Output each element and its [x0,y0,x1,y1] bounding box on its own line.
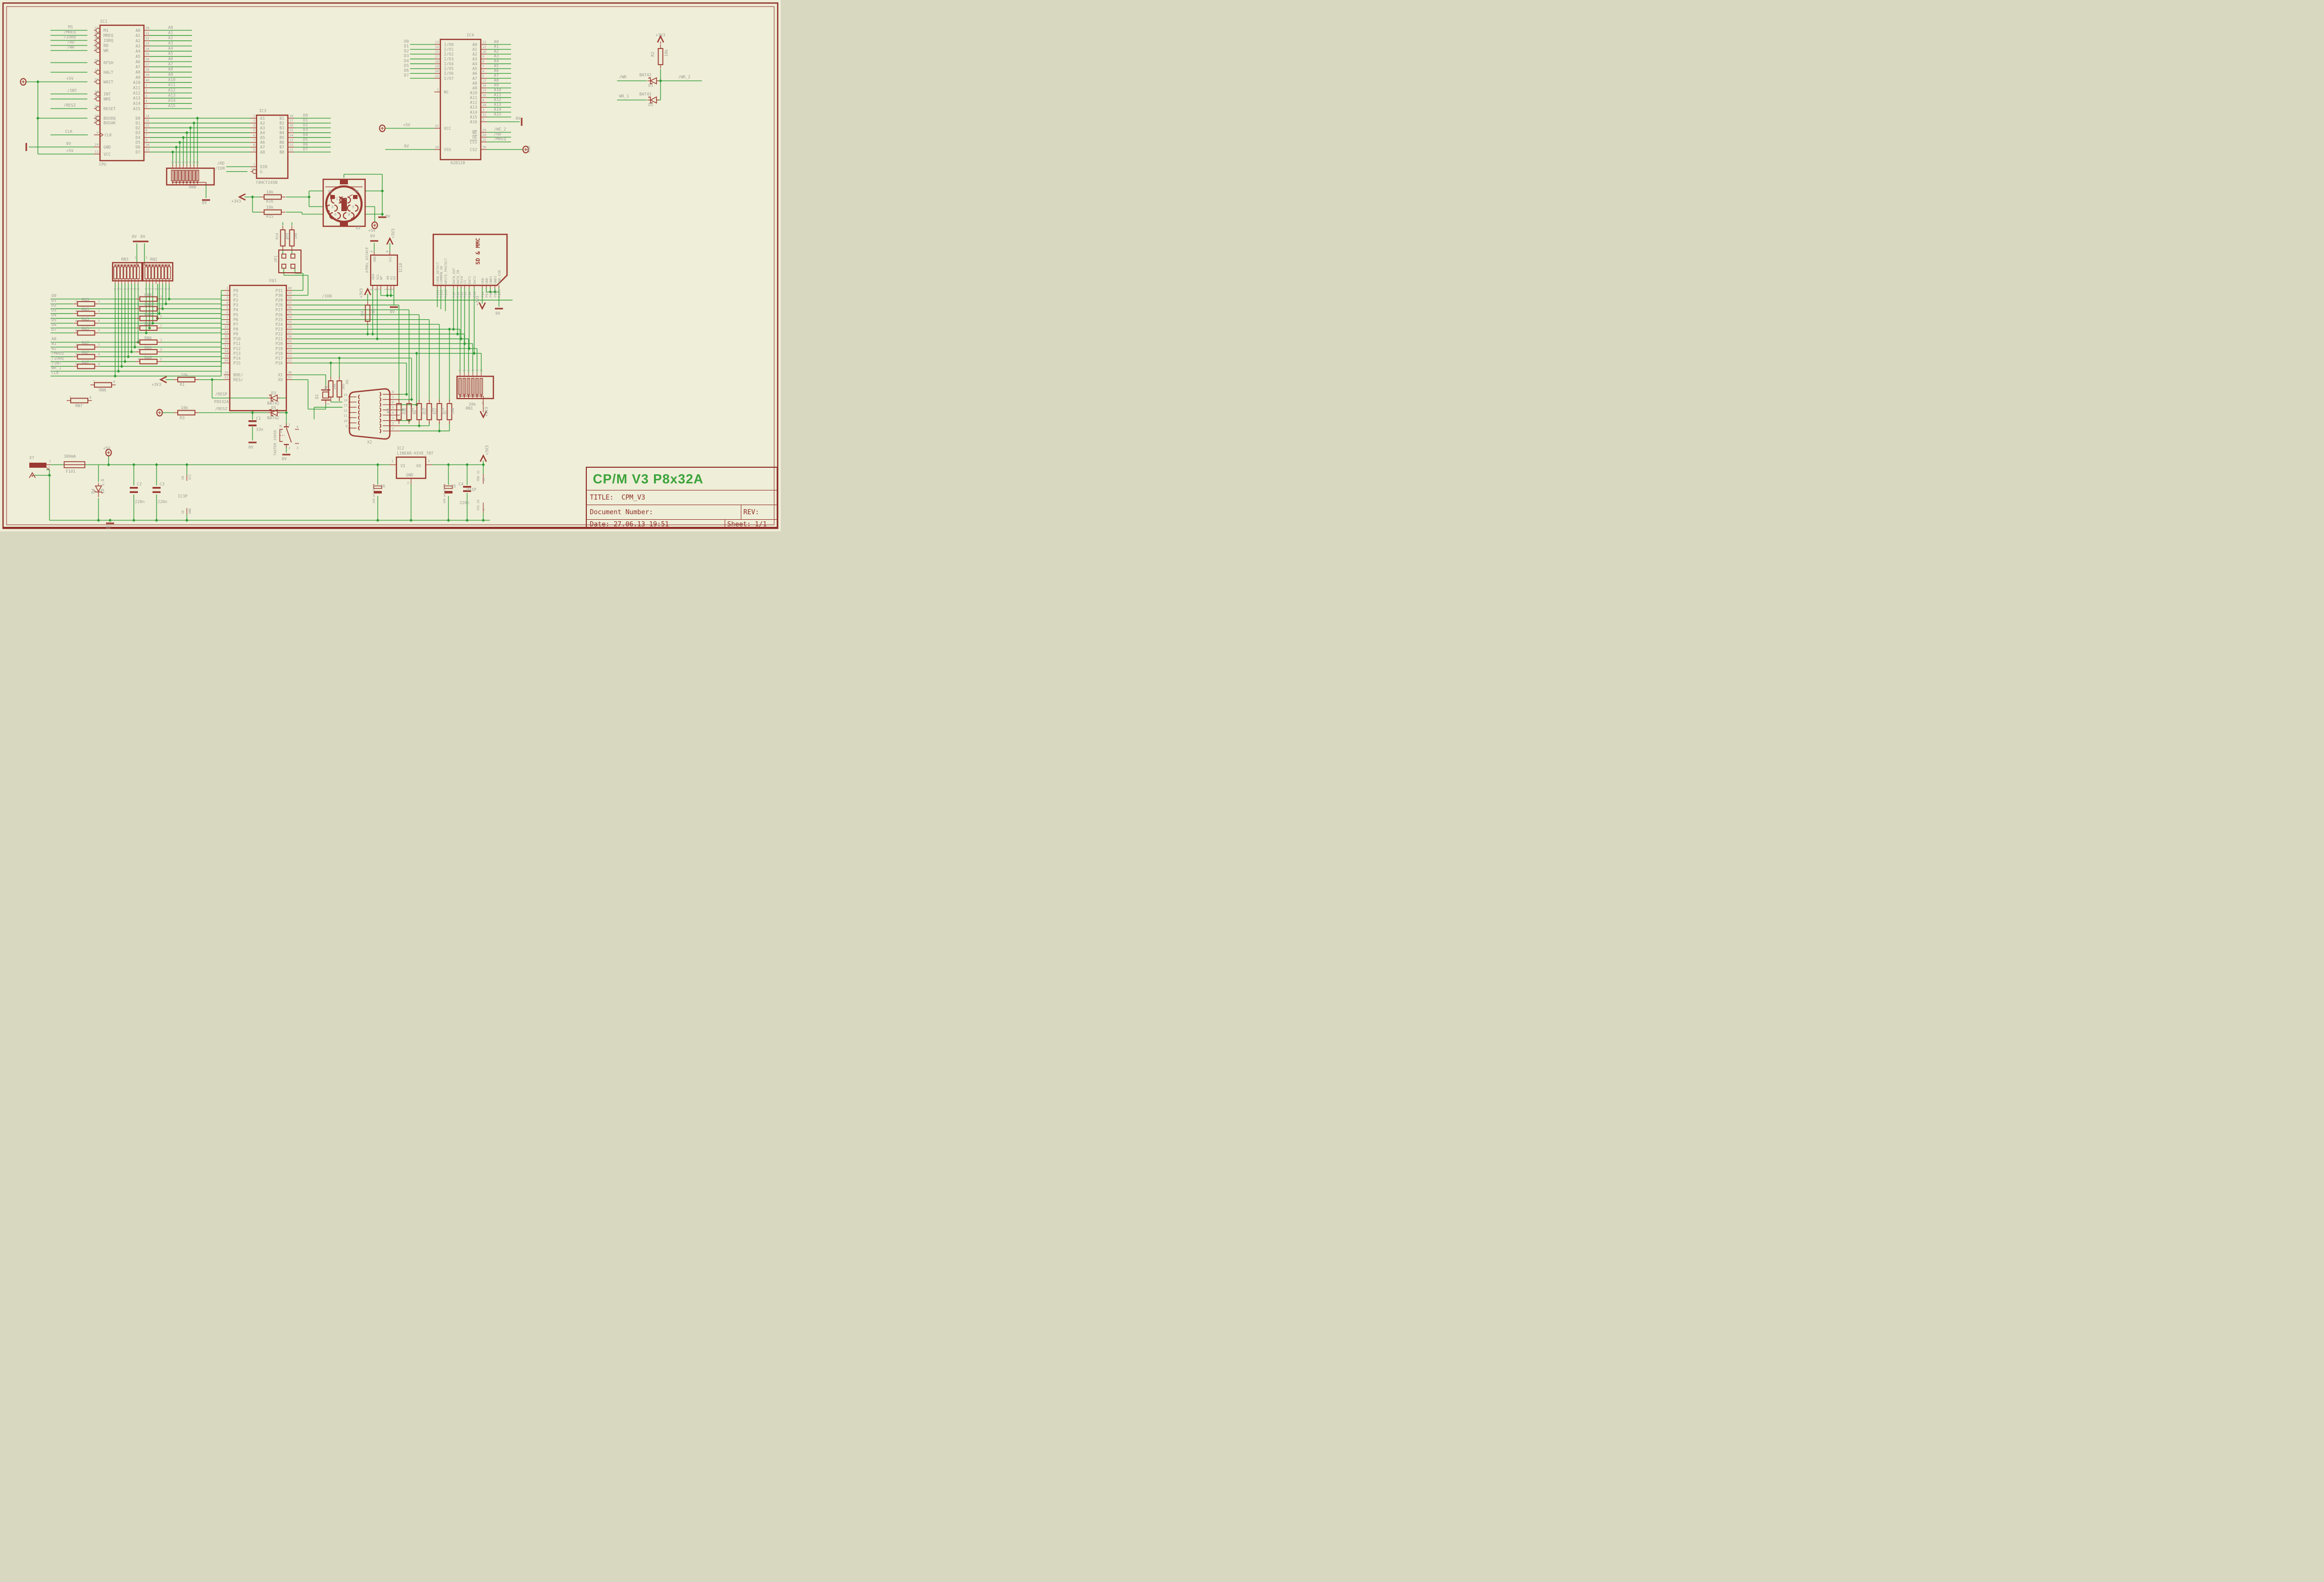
svg-text:38: 38 [145,68,149,72]
respack-RN1: 765432 [457,369,493,399]
svg-text:8: 8 [392,390,394,394]
svg-text:A5: A5 [168,52,173,56]
svg-text:+3V3: +3V3 [151,382,161,387]
svg-text:12: 12 [482,40,486,44]
svg-text:GND: GND [188,508,192,514]
svg-text:P16: P16 [276,361,283,365]
svg-text:31: 31 [288,375,292,379]
svg-text:A10: A10 [133,80,141,85]
svg-text:/RESP: /RESP [215,392,227,397]
svg-text:D1: D1 [648,83,653,88]
svg-text:32: 32 [145,36,149,40]
svg-text:/IOR: /IOR [215,166,225,171]
svg-text:35: 35 [288,311,292,315]
svg-text:+5V: +5V [66,76,74,81]
svg-text:1: 1 [288,423,290,427]
svg-text:M1: M1 [104,28,109,33]
svg-text:6: 6 [253,133,255,137]
svg-text:RN4: RN4 [144,293,152,298]
svg-text:0V: 0V [370,234,375,238]
svg-text:13: 13 [224,325,228,329]
svg-text:2: 2 [253,114,255,118]
svg-text:15: 15 [435,50,439,54]
svg-text:D1: D1 [404,44,409,48]
svg-text:2: 2 [195,161,199,163]
svg-text:13: 13 [289,138,293,142]
svg-text:B3: B3 [279,126,284,130]
svg-text:GND1: GND1 [489,276,493,284]
svg-text:RN3: RN3 [121,257,129,262]
svg-text:13: 13 [343,404,347,408]
svg-text:8: 8 [385,251,389,253]
svg-text:+5V: +5V [103,446,111,451]
svg-text:8: 8 [226,320,228,324]
svg-text:P2: P2 [233,298,238,303]
svg-text:D4: D4 [91,488,95,493]
svg-text:19: 19 [224,354,228,358]
svg-text:P29: P29 [276,298,283,303]
svg-text:1: 1 [145,83,147,87]
svg-text:DAT2: DAT2 [473,276,477,284]
svg-text:A2: A2 [135,39,140,43]
fuse-f101 [64,462,85,468]
svg-text:RESET: RESET [104,107,116,111]
svg-text:R4: R4 [360,311,365,316]
svg-text:D7: D7 [303,147,308,152]
schematic-canvas: 27M119MREQ20IORQ21RD22WR28RFSH18HALT24WA… [0,0,781,531]
svg-text:P7: P7 [233,322,238,327]
svg-text:18: 18 [224,349,228,353]
schematic-sheet: 27M119MREQ20IORQ21RD22WR28RFSH18HALT24WA… [0,0,781,531]
svg-text:17: 17 [289,119,293,123]
svg-text:F101: F101 [66,469,75,474]
svg-text:B7: B7 [279,145,284,150]
svg-text:B8: B8 [279,150,284,155]
date-label: Date: [590,521,610,528]
svg-text:P10: P10 [233,337,241,341]
svg-text:A0: A0 [168,25,173,30]
svg-text:0V: 0V [495,311,500,316]
svg-text:7: 7 [226,315,228,319]
svg-text:1: 1 [336,197,338,201]
svg-text:SD & MMC: SD & MMC [475,238,481,265]
svg-text:2: 2 [75,300,77,304]
svg-text:VDD: VDD [481,278,485,284]
svg-text:IC3P: IC3P [178,494,187,499]
svg-text:A0: A0 [52,337,57,341]
svg-text:IC1: IC1 [100,19,108,24]
svg-text:24: 24 [482,133,486,137]
svg-text:BAT42: BAT42 [267,416,279,420]
svg-text:A1: A1 [135,33,140,38]
svg-text:A14: A14 [470,110,478,115]
svg-text:14: 14 [435,45,439,49]
svg-text:1: 1 [391,459,393,463]
svg-text:A13: A13 [168,93,176,97]
svg-text:39: 39 [288,291,292,295]
svg-text:3: 3 [75,353,77,357]
svg-text:0V: 0V [66,141,71,146]
svg-text:1: 1 [160,338,162,342]
svg-text:A13: A13 [470,105,478,110]
svg-text:26: 26 [94,105,98,109]
svg-text:470: 470 [441,408,445,414]
svg-text:A6: A6 [168,57,173,61]
rev-label: REV: [741,505,777,519]
svg-text:B2: B2 [279,121,284,125]
svg-text:D5: D5 [303,137,308,142]
svg-text:MREQ: MREQ [104,33,113,38]
svg-text:P19: P19 [276,347,283,351]
svg-text:DAT1: DAT1 [468,276,472,284]
svg-text:P9: P9 [233,332,238,336]
svg-text:8: 8 [75,329,77,333]
svg-text:A11: A11 [470,95,478,100]
svg-text:26: 26 [288,334,292,338]
svg-text:IC4: IC4 [467,33,474,37]
svg-text:8: 8 [253,143,255,147]
red-stub-lines [46,41,661,514]
svg-text:CS2: CS2 [470,147,478,152]
svg-text:RN5: RN5 [82,327,89,331]
svg-text:ZD 5,6: ZD 5,6 [100,479,105,493]
document-number-label: Document Number: [587,505,741,519]
svg-text:30: 30 [288,371,292,375]
svg-text:+5V: +5V [403,123,411,127]
svg-text:P8: P8 [233,327,238,332]
svg-text:OE: OE [472,135,477,139]
svg-text:2: 2 [136,288,140,290]
svg-text:3: 3 [475,369,479,371]
svg-text:D2: D2 [52,303,57,308]
wires [26,30,702,522]
svg-text:XI: XI [278,373,283,377]
svg-text:4: 4 [75,309,77,313]
svg-text:R2: R2 [650,52,655,57]
ic-IC1: 27M119MREQ20IORQ21RD22WR28RFSH18HALT24WA… [94,25,150,161]
svg-text:PE: PE [328,189,332,193]
svg-text:19: 19 [435,64,439,68]
svg-text:A8: A8 [260,150,265,155]
svg-text:A10: A10 [470,91,478,95]
svg-text:D7: D7 [404,73,409,78]
svg-text:7: 7 [377,288,381,290]
svg-text:24: 24 [94,78,98,82]
svg-text:5: 5 [369,288,373,290]
svg-text:P$14: P$14 [493,289,497,298]
svg-text:/WR: /WR [619,75,627,79]
svg-text:+3V3: +3V3 [655,33,665,37]
svg-text:RN6: RN6 [144,345,152,350]
svg-text:2: 2 [392,421,394,425]
svg-text:A11: A11 [168,83,176,87]
svg-text:A4: A4 [472,62,477,66]
svg-text:A5: A5 [494,64,499,68]
svg-text:P4: P4 [233,308,238,312]
svg-text:+3V3: +3V3 [231,199,241,204]
svg-text:18: 18 [435,60,439,64]
svg-text:1: 1 [253,163,255,167]
svg-text:14: 14 [145,114,149,118]
svg-text:P$10: P$10 [444,289,448,298]
svg-text:WRITE_PROTECT: WRITE_PROTECT [444,258,448,284]
svg-text:A3: A3 [260,126,265,130]
svg-text:GND: GND [104,145,111,150]
svg-text:D1: D1 [303,118,308,123]
svg-text:IC3: IC3 [259,109,267,113]
svg-text:A10: A10 [168,77,176,82]
title-label: TITLE: [590,494,614,502]
svg-text:10: 10 [224,371,228,375]
svg-text:6: 6 [96,131,98,135]
svg-text:A15: A15 [470,115,478,119]
svg-text:29: 29 [94,143,98,147]
din-connector-x3 [323,179,365,226]
svg-text:15: 15 [343,393,347,397]
svg-text:+5V: +5V [66,149,74,153]
svg-text:/WR_2: /WR_2 [678,75,690,79]
svg-text:0V: 0V [282,457,287,461]
svg-text:RN4: RN4 [144,303,152,307]
svg-text:12: 12 [145,124,149,128]
svg-text:RD: RD [104,43,109,48]
svg-text:A3: A3 [472,57,477,62]
svg-text:220n: 220n [135,500,144,504]
svg-text:C4: C4 [459,482,464,486]
respack-RN8: 98765432 [167,161,214,185]
svg-text:INT: INT [104,92,111,96]
svg-text:+3V3: +3V3 [485,446,489,455]
svg-text:R13: R13 [286,233,290,239]
svg-text:74HCT245N: 74HCT245N [256,180,278,185]
wire-junctions [36,79,662,522]
svg-text:2: 2 [48,471,50,475]
svg-text:2: 2 [479,369,483,371]
labels: IC1CPUM1/MREQ/IORQ/RD/WR+5V/INT/RESZCLK0… [29,19,690,530]
svg-text:30: 30 [145,26,149,30]
svg-text:470: 470 [400,408,405,414]
svg-text:I/O1: I/O1 [444,47,453,52]
svg-text:A9: A9 [168,72,173,77]
svg-text:1: 1 [326,403,330,405]
svg-text:1: 1 [49,459,51,463]
svg-text:220n: 220n [460,501,469,505]
svg-text:D3: D3 [135,131,140,135]
svg-text:R3: R3 [180,416,185,420]
svg-text:A16: A16 [470,120,478,124]
svg-text:A15: A15 [494,112,501,117]
svg-text:P13: P13 [233,351,241,356]
svg-text:12: 12 [289,143,293,147]
svg-text:7: 7 [458,369,462,371]
svg-text:P30: P30 [276,293,283,298]
svg-text:P12: P12 [233,347,241,351]
svg-text:9: 9 [253,148,255,152]
svg-text:/MREQ: /MREQ [64,30,76,34]
svg-text:BAT42: BAT42 [639,92,651,96]
svg-text:3: 3 [428,459,430,463]
svg-text:1: 1 [481,401,483,405]
svg-text:D7: D7 [52,327,57,332]
svg-text:A7: A7 [260,145,265,150]
svg-text:P21: P21 [276,337,283,341]
svg-text:P6: P6 [233,317,238,322]
svg-text:+3V3: +3V3 [359,288,364,298]
svg-text:7: 7 [392,395,394,399]
svg-text:B4: B4 [279,131,284,135]
svg-text:COMMON_SW: COMMON_SW [439,266,443,284]
svg-text:8: 8 [145,128,147,132]
svg-text:I/O4: I/O4 [444,62,453,66]
svg-text:1k5: 1k5 [341,383,345,390]
svg-text:4: 4 [471,369,475,371]
svg-text:240: 240 [451,408,455,414]
svg-text:36: 36 [145,58,149,62]
svg-text:P23: P23 [276,327,283,332]
svg-text:VCC: VCC [388,256,392,262]
svg-text:RN7: RN7 [82,360,89,365]
svg-text:11: 11 [482,45,486,49]
svg-text:21: 21 [435,74,439,78]
svg-text:33: 33 [145,42,149,46]
svg-text:P$12: P$12 [439,289,443,298]
svg-text:25: 25 [482,93,486,97]
svg-text:0V: 0V [132,234,137,239]
svg-text:I/O0: I/O0 [444,42,453,47]
svg-text:5: 5 [226,306,228,310]
svg-text:XO: XO [278,377,283,382]
svg-text:17: 17 [435,55,439,59]
svg-text:P14: P14 [233,356,241,361]
svg-text:GND: GND [373,256,377,262]
svg-text:NC: NC [444,90,449,94]
svg-text:D4: D4 [303,132,308,137]
svg-text:18: 18 [94,68,98,72]
svg-text:A9: A9 [135,75,140,80]
svg-text:16: 16 [435,145,439,150]
svg-text:A2: A2 [260,121,265,125]
svg-text:C3: C3 [160,482,165,486]
svg-text:I/O7: I/O7 [444,76,453,81]
svg-text:12: 12 [482,477,486,481]
svg-text:A4: A4 [260,131,265,135]
svg-text:22: 22 [482,138,486,142]
svg-text:SDA: SDA [371,274,375,280]
svg-text:15: 15 [289,128,293,132]
svg-text:100 µF 16 V: 100 µF 16 V [373,485,376,504]
svg-text:9: 9 [145,138,147,142]
svg-text:2: 2 [138,338,140,342]
svg-text:7: 7 [253,138,255,142]
svg-text:D5: D5 [404,63,409,68]
svg-text:G: G [260,169,263,174]
svg-text:2: 2 [98,343,100,347]
svg-text:10k: 10k [181,373,188,377]
svg-text:P11: P11 [233,341,241,346]
svg-text:5: 5 [392,406,394,410]
svg-text:A13: A13 [133,96,141,101]
svg-text:D0: D0 [52,293,57,298]
svg-text:+: + [373,483,375,487]
svg-text:4: 4 [145,99,147,103]
svg-text:/RESZ: /RESZ [215,407,227,411]
svg-text:4: 4 [226,301,228,305]
svg-text:5: 5 [352,205,354,209]
svg-text:A8: A8 [135,70,140,75]
svg-text:5: 5 [253,128,255,132]
svg-text:RN7: RN7 [75,404,83,408]
svg-text:0V: 0V [140,234,145,239]
svg-text:/RD: /RD [217,161,225,166]
svg-text:1: 1 [134,256,136,260]
title-block-title-row: TITLE: CPM_V3 [587,490,777,505]
svg-text:D3: D3 [52,308,57,313]
svg-text:3: 3 [390,288,394,290]
sheet-label: Sheet: [727,521,751,528]
svg-text:3: 3 [145,94,147,98]
svg-text:VDD 32: VDD 32 [477,470,480,481]
svg-text:A4: A4 [135,49,140,54]
svg-text:5: 5 [75,362,77,366]
svg-text:A4: A4 [168,46,173,51]
svg-text:+5V: +5V [368,228,376,233]
svg-text:1: 1 [145,256,147,260]
svg-text:6: 6 [75,319,77,323]
svg-text:10: 10 [482,50,486,54]
svg-text:10k: 10k [266,190,274,194]
svg-text:11: 11 [94,150,98,154]
svg-text:2: 2 [138,295,140,299]
svg-text:RN1: RN1 [466,406,473,411]
svg-text:P20: P20 [276,341,283,346]
svg-text:RN7: RN7 [82,341,89,345]
svg-text:6: 6 [138,357,140,361]
svg-text:31: 31 [482,113,486,117]
svg-text:D4: D4 [52,313,57,317]
svg-text:9: 9 [345,424,347,428]
svg-text:BUSAK: BUSAK [104,121,116,125]
svg-text:P15: P15 [233,361,241,365]
svg-text:4: 4 [392,411,394,415]
svg-text:27: 27 [288,330,292,334]
svg-text:I/O5: I/O5 [444,67,453,71]
svg-text:34: 34 [288,315,292,319]
svg-text:40: 40 [145,78,149,82]
svg-text:CLK: CLK [52,371,59,375]
svg-text:GND: GND [406,473,414,477]
svg-text:14: 14 [343,398,347,402]
svg-text:P1: P1 [233,293,238,298]
svg-text:WR: WR [104,48,109,53]
svg-text:A2: A2 [168,36,173,40]
svg-text:A3: A3 [168,41,173,45]
svg-text:R16: R16 [266,199,274,204]
svg-text:P3: P3 [233,303,238,308]
svg-text:P18: P18 [276,351,283,356]
svg-text:VSS 29: VSS 29 [477,500,480,511]
ic-IC3: 2A13A24A35A46A57A68A79A81DIR19G18B117B21… [250,114,294,179]
svg-text:A8: A8 [168,67,173,72]
title-block: CP/M V3 P8x32A TITLE: CPM_V3 Document Nu… [586,467,778,528]
svg-text:28: 28 [288,325,292,329]
sheet-value: 1/1 [755,521,767,528]
svg-text:23: 23 [482,88,486,92]
svg-text:P$3: P$3 [485,291,489,298]
svg-text:LINEAR-HIVE_78T: LINEAR-HIVE_78T [397,451,433,456]
svg-text:VSS: VSS [444,147,451,152]
svg-text:A12: A12 [470,101,478,105]
svg-text:P8X32A: P8X32A [214,400,229,404]
